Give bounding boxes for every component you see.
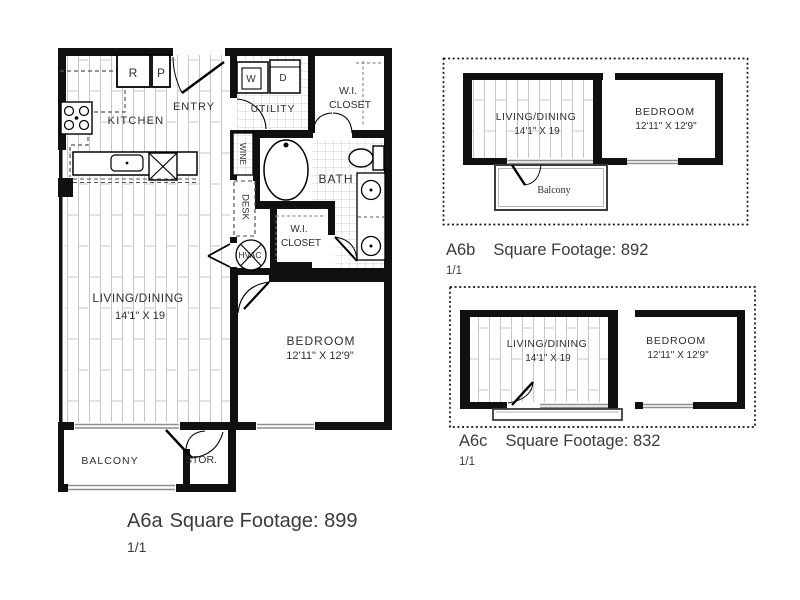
label-bath: BATH: [318, 172, 353, 186]
dishwasher: [149, 153, 177, 180]
caption-a6a-line: A6aSquare Footage: 899: [127, 509, 358, 534]
label-living-dining-dims: 14'1" X 19: [514, 126, 560, 137]
plan-a6a-drawing: KITCHEN ENTRY UTILITY W.I. CLOSET WINE D…: [45, 15, 400, 500]
label-balcony: Balcony: [537, 185, 570, 196]
caption-a6b-line: A6bSquare Footage: 892: [446, 240, 648, 260]
label-wi-closet-hall-2: CLOSET: [281, 238, 321, 249]
label-living-dining: LIVING/DINING: [92, 291, 183, 305]
label-wi-closet-hall-1: W.I.: [290, 224, 307, 235]
plan-name-a6b: A6b: [446, 241, 475, 259]
label-entry: ENTRY: [173, 101, 215, 113]
storage-door-arc: [186, 431, 205, 449]
label-utility: UTILITY: [251, 103, 296, 115]
toilet-bowl: [349, 149, 373, 167]
tub-faucet: [284, 143, 289, 148]
plan-name-a6a: A6a: [127, 510, 163, 532]
label-hvac: HVAC: [239, 250, 262, 260]
page-indicator-a6a: 1/1: [127, 535, 358, 560]
caption-a6b: A6bSquare Footage: 892 1/1: [446, 240, 648, 281]
label-living-dining: LIVING/DINING: [507, 338, 588, 350]
label-washer: W: [246, 74, 256, 85]
label-bedroom-dims: 12'11" X 12'9": [286, 350, 354, 362]
page-indicator-a6c: 1/1: [459, 452, 660, 472]
page-indicator-a6b: 1/1: [446, 261, 648, 281]
label-bedroom: BEDROOM: [286, 334, 355, 348]
label-bedroom-dims: 12'11" X 12'9": [635, 121, 697, 132]
wi-closet-double-doors: [313, 113, 352, 133]
plan-a6c-drawing: LIVING/DINING 14'1" X 19 BEDROOM 12'11" …: [445, 283, 760, 433]
windows-and-sliders: [508, 161, 679, 164]
plan-name-a6c: A6c: [459, 432, 487, 450]
bathtub: [264, 140, 308, 200]
caption-a6a: A6aSquare Footage: 899 1/1: [127, 509, 358, 560]
label-desk: DESK: [240, 194, 251, 221]
label-wi-closet-upper-1: W.I.: [339, 85, 357, 97]
label-bedroom: BEDROOM: [646, 335, 706, 347]
label-storage: STOR.: [185, 454, 217, 466]
label-kitchen: KITCHEN: [108, 115, 165, 127]
label-bedroom: BEDROOM: [635, 106, 695, 118]
caption-a6c: A6cSquare Footage: 832 1/1: [459, 431, 660, 472]
label-living-dining: LIVING/DINING: [496, 111, 577, 123]
plan-footage-a6b: Square Footage: 892: [493, 241, 648, 259]
label-wine: WINE: [238, 143, 248, 166]
label-pantry: P: [157, 66, 165, 80]
floor-plan-sheet: KITCHEN ENTRY UTILITY W.I. CLOSET WINE D…: [0, 0, 800, 600]
label-bedroom-dims: 12'11" X 12'9": [647, 350, 709, 361]
plan-a6b-drawing: LIVING/DINING 14'1" X 19 BEDROOM 12'11" …: [440, 55, 755, 230]
label-balcony: BALCONY: [81, 455, 138, 467]
label-wi-closet-upper-2: CLOSET: [329, 99, 372, 111]
plan-footage-a6c: Square Footage: 832: [505, 432, 660, 450]
caption-a6c-line: A6cSquare Footage: 832: [459, 431, 660, 451]
plan-footage-a6a: Square Footage: 899: [170, 510, 358, 532]
toilet-tank: [373, 146, 384, 170]
balcony: [493, 409, 622, 420]
label-living-dining-dims: 14'1" X 19: [525, 353, 571, 364]
label-dryer: D: [279, 73, 286, 84]
label-refrigerator: R: [129, 66, 138, 80]
label-living-dining-dims: 14'1" X 19: [115, 310, 165, 322]
